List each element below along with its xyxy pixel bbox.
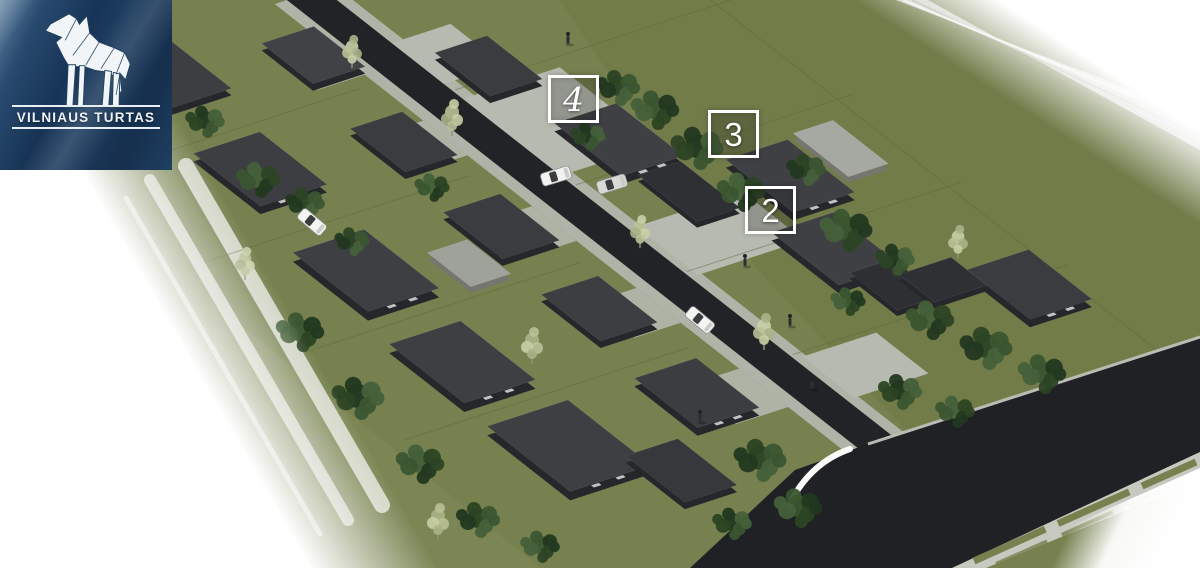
fade-top-right <box>0 0 1200 568</box>
plot-marker-4[interactable]: 4 <box>548 75 599 123</box>
plot-marker-3[interactable]: 3 <box>708 110 759 158</box>
wolf-icon <box>35 12 137 110</box>
brand-name: VILNIAUS TURTAS <box>12 105 161 129</box>
brand-logo[interactable]: VILNIAUS TURTAS <box>0 0 172 170</box>
site-plan-render: 4 3 2 VILNIAUS TURTAS <box>0 0 1200 568</box>
plot-marker-2[interactable]: 2 <box>745 186 796 234</box>
aerial-render <box>0 0 1200 568</box>
